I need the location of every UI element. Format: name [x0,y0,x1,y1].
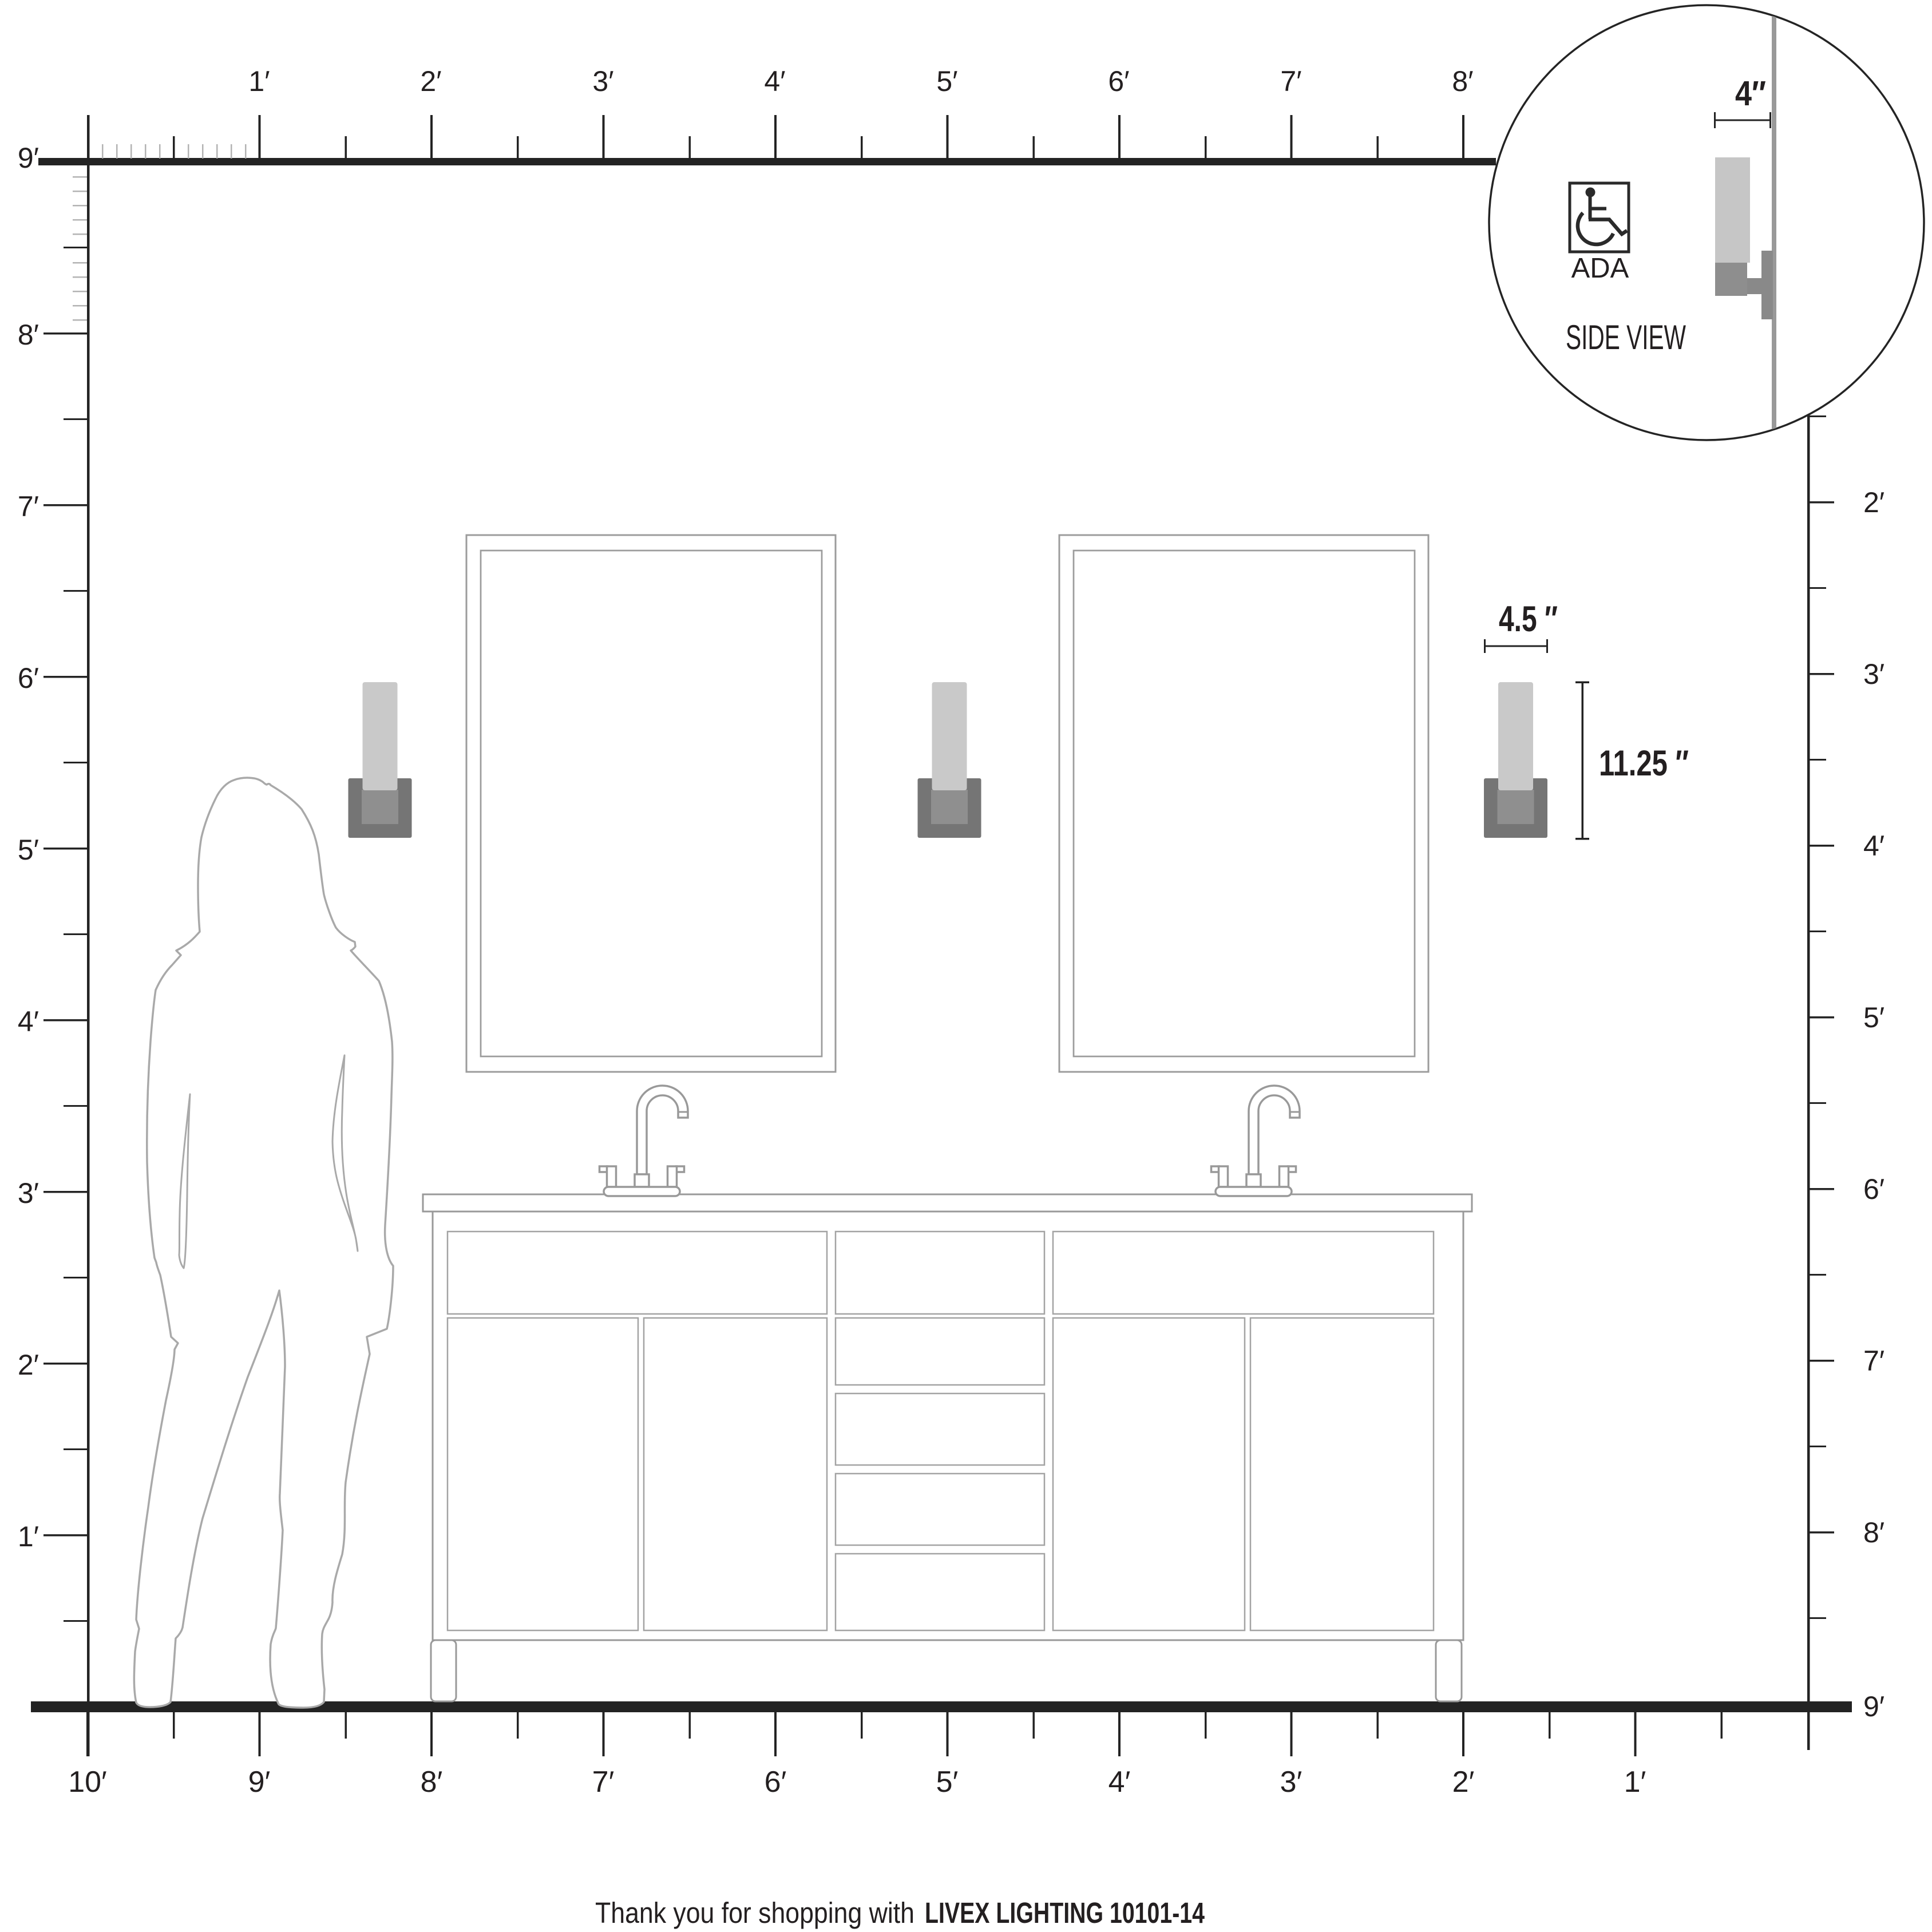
svg-text:7′: 7′ [18,490,39,522]
svg-text:4.5 ″: 4.5 ″ [1499,599,1558,639]
svg-text:2′: 2′ [1863,486,1885,518]
svg-text:9′: 9′ [1863,1690,1885,1723]
svg-text:7′: 7′ [1280,65,1301,97]
svg-text:5′: 5′ [936,65,957,97]
svg-text:7′: 7′ [1863,1345,1885,1377]
svg-text:1′: 1′ [1624,1765,1646,1799]
svg-text:2′: 2′ [1452,1765,1475,1799]
svg-text:SIDE VIEW: SIDE VIEW [1566,318,1686,357]
svg-text:8′: 8′ [18,319,39,351]
svg-text:6′: 6′ [765,1765,787,1799]
svg-text:11.25 ″: 11.25 ″ [1599,743,1689,783]
svg-text:8′: 8′ [1452,65,1473,97]
svg-text:6′: 6′ [18,662,39,694]
svg-text:1′: 1′ [248,65,270,97]
svg-text:8′: 8′ [421,1765,443,1799]
svg-text:7′: 7′ [592,1765,615,1799]
svg-text:3′: 3′ [592,65,613,97]
svg-text:5′: 5′ [18,834,39,866]
svg-text:6′: 6′ [1863,1173,1885,1205]
svg-text:9′: 9′ [18,142,39,174]
svg-text:5′: 5′ [1863,1001,1885,1034]
svg-text:4′: 4′ [1863,830,1885,862]
svg-text:LIVEX LIGHTING 10101-14: LIVEX LIGHTING 10101-14 [925,1897,1205,1929]
svg-text:4′: 4′ [1108,1765,1131,1799]
svg-text:2′: 2′ [420,65,441,97]
svg-text:5′: 5′ [936,1765,959,1799]
svg-text:8′: 8′ [1863,1517,1885,1549]
svg-text:3′: 3′ [18,1177,39,1209]
svg-text:2′: 2′ [18,1349,39,1381]
svg-text:ADA: ADA [1571,253,1629,284]
svg-text:Thank you for shopping with: Thank you for shopping with [595,1897,914,1929]
svg-text:1′: 1′ [18,1521,39,1553]
svg-text:4′: 4′ [764,65,785,97]
svg-text:4″: 4″ [1735,74,1766,113]
svg-text:4′: 4′ [18,1005,39,1038]
svg-text:3′: 3′ [1280,1765,1302,1799]
svg-text:6′: 6′ [1108,65,1129,97]
svg-text:10′: 10′ [68,1765,107,1799]
svg-text:9′: 9′ [248,1765,271,1799]
svg-text:3′: 3′ [1863,658,1885,690]
